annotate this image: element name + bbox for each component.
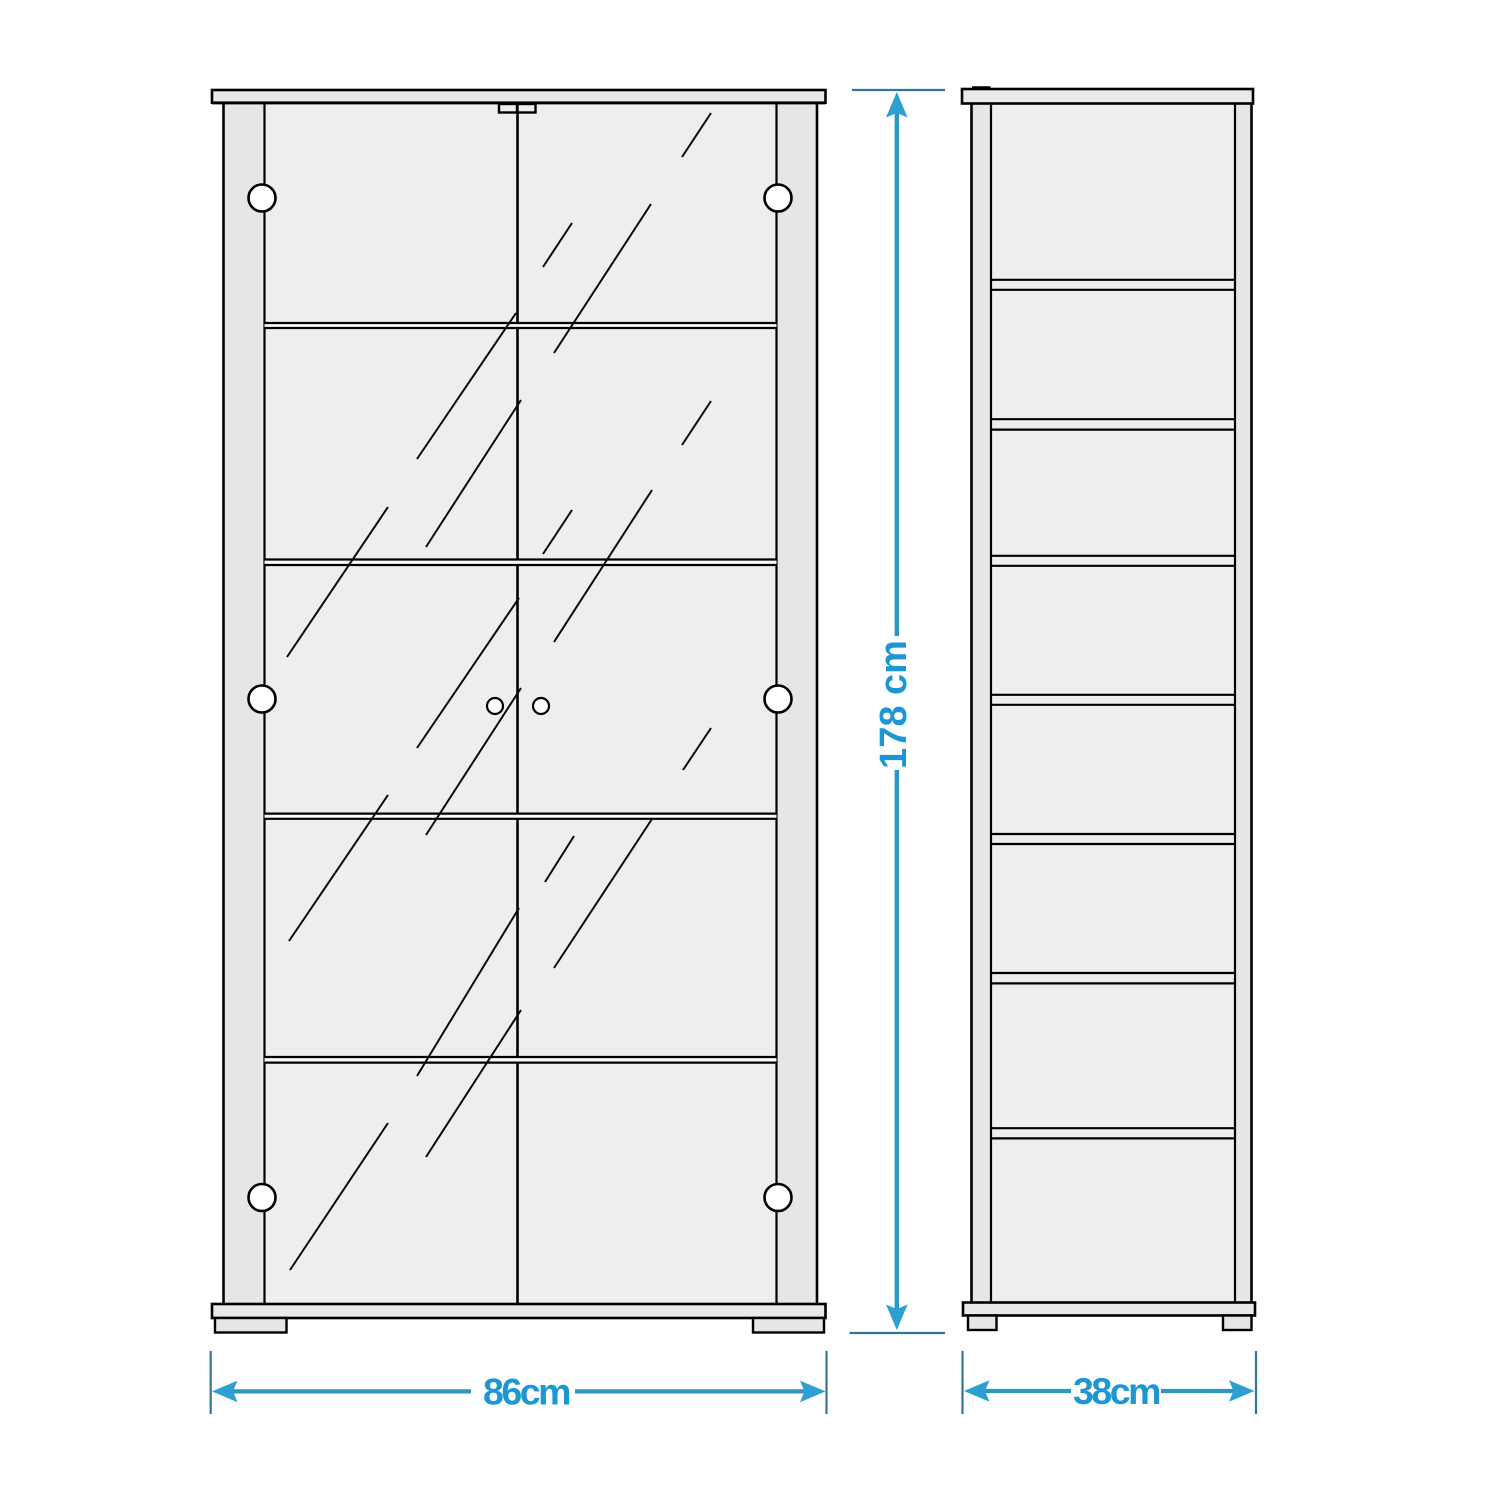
svg-text:178 cm: 178 cm xyxy=(873,640,915,769)
svg-text:86cm: 86cm xyxy=(483,1371,570,1413)
svg-text:38cm: 38cm xyxy=(1073,1370,1160,1412)
